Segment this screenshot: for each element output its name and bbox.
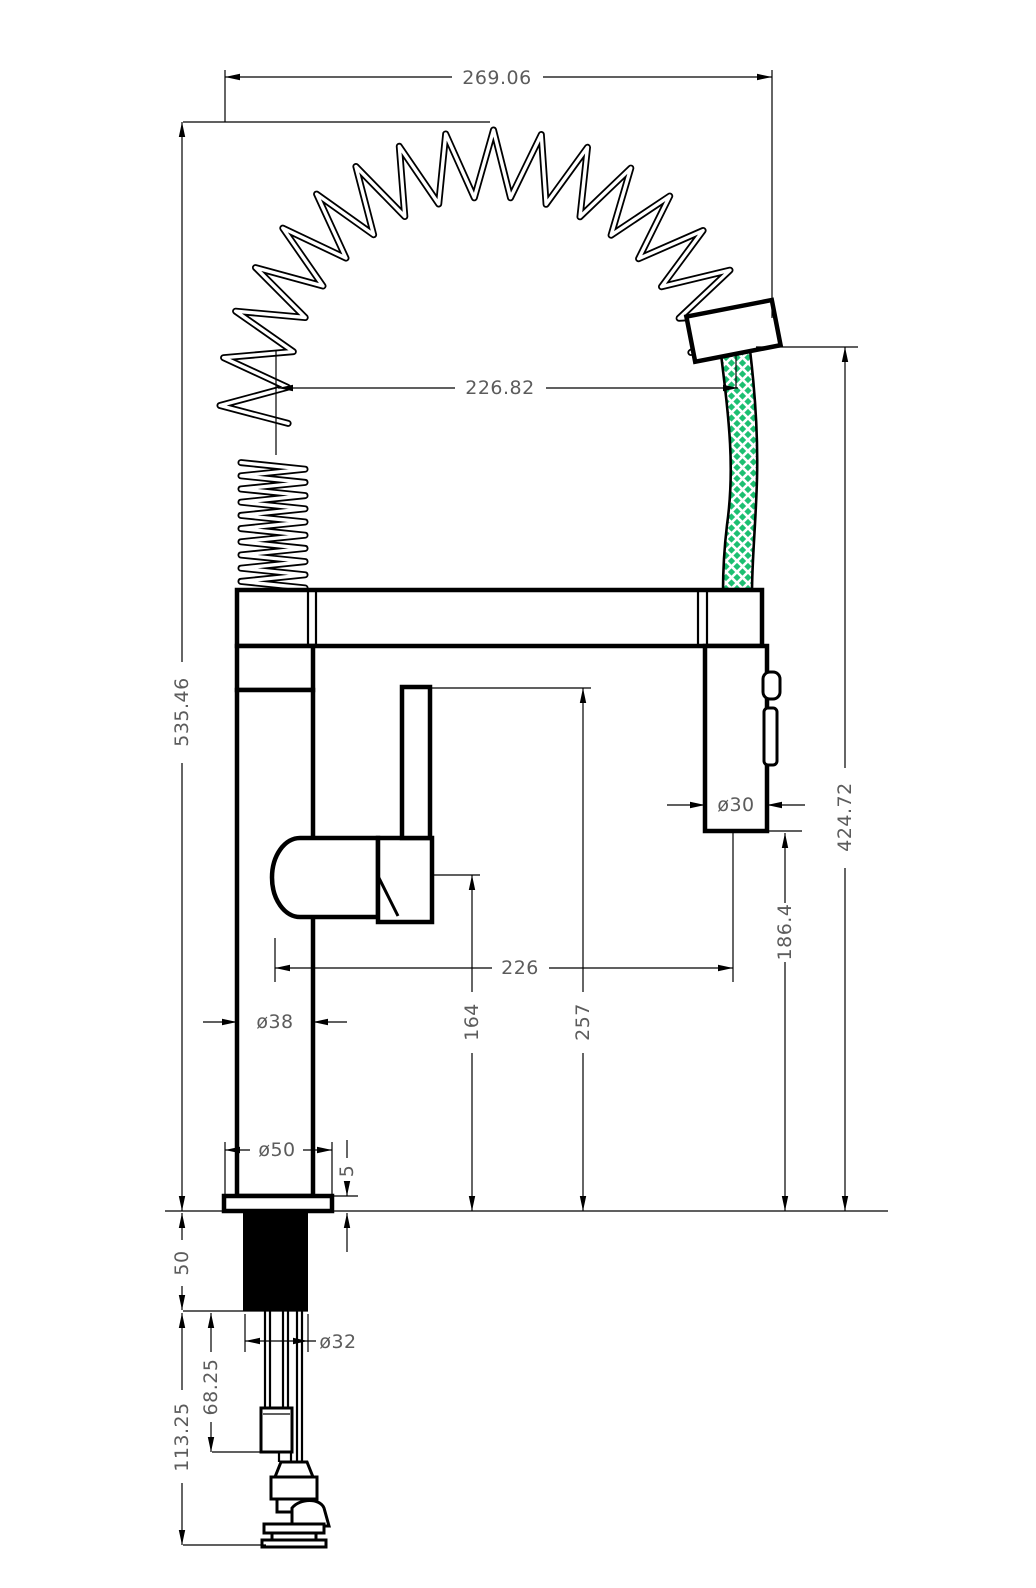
dim-sprayer-diameter: ø30 (667, 794, 805, 816)
dim-label-coil-to-hose-span: 226.82 (465, 377, 534, 399)
sprayer-button-lower (764, 708, 777, 765)
hose-collar-fitting (686, 300, 780, 362)
sprayer-button-upper (763, 672, 780, 699)
dim-under-deck-depth: 113.25 (171, 1313, 266, 1545)
dim-label-hose-drop-height: 424.72 (834, 782, 856, 851)
dim-overall-height: 535.46 (171, 122, 490, 1211)
dim-label-overall-height: 535.46 (171, 677, 193, 746)
dim-label-spout-reach: 226 (501, 957, 539, 979)
dim-label-sprayer-to-deck: 186.4 (774, 904, 796, 961)
column-collar (237, 646, 313, 690)
dim-label-under-deck-depth: 113.25 (171, 1402, 193, 1471)
dim-label-overall-width: 269.06 (462, 67, 531, 89)
dim-label-connector-drop: 68.25 (200, 1359, 222, 1416)
dim-label-body-diameter: ø38 (256, 1011, 293, 1033)
faucet-dimension-drawing: 269.06 226.82 535.46 424.72 (0, 0, 1036, 1588)
handle-lever-arm (402, 687, 430, 838)
dim-hose-drop-height: 424.72 (756, 347, 858, 1211)
dim-label-handle-height: 164 (461, 1003, 483, 1041)
dim-spout-height: 257 (432, 688, 594, 1211)
dim-shank-diameter: ø32 (245, 1314, 357, 1353)
dim-handle-height: 164 (432, 875, 483, 1211)
dim-base-plate-thickness: 5 (333, 1140, 358, 1252)
base-flange (224, 1196, 332, 1211)
dim-label-sprayer-diameter: ø30 (717, 794, 754, 816)
handle-base (378, 838, 432, 922)
dim-label-shank-diameter: ø32 (319, 1331, 356, 1353)
dim-label-base-plate-thickness: 5 (336, 1165, 358, 1178)
threaded-shank (243, 1211, 308, 1311)
dim-label-base-diameter: ø50 (258, 1139, 295, 1161)
dim-coil-to-hose-span: 226.82 (276, 350, 738, 455)
faucet-geometry (165, 130, 888, 1547)
handle-grip (272, 838, 378, 917)
quick-connect-fitting (262, 1462, 329, 1547)
dim-sprayer-to-deck: 186.4 (742, 831, 802, 1211)
dim-label-spout-height: 257 (572, 1003, 594, 1041)
dim-label-shank-length: 50 (171, 1250, 193, 1275)
dim-connector-drop: 68.25 (200, 1313, 262, 1452)
spring-coil (220, 130, 749, 588)
